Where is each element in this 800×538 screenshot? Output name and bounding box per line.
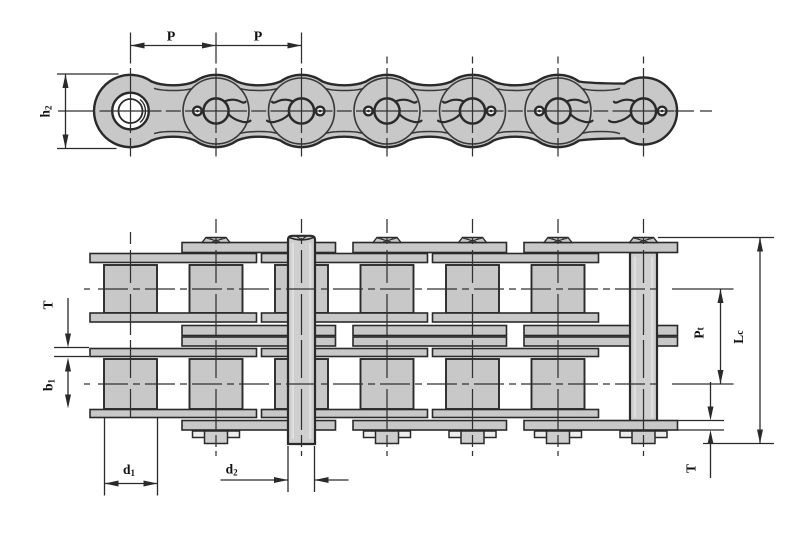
svg-text:T: T (40, 300, 55, 309)
svg-text:T: T (684, 464, 699, 473)
svg-text:P: P (167, 30, 176, 45)
svg-text:P: P (254, 30, 263, 45)
